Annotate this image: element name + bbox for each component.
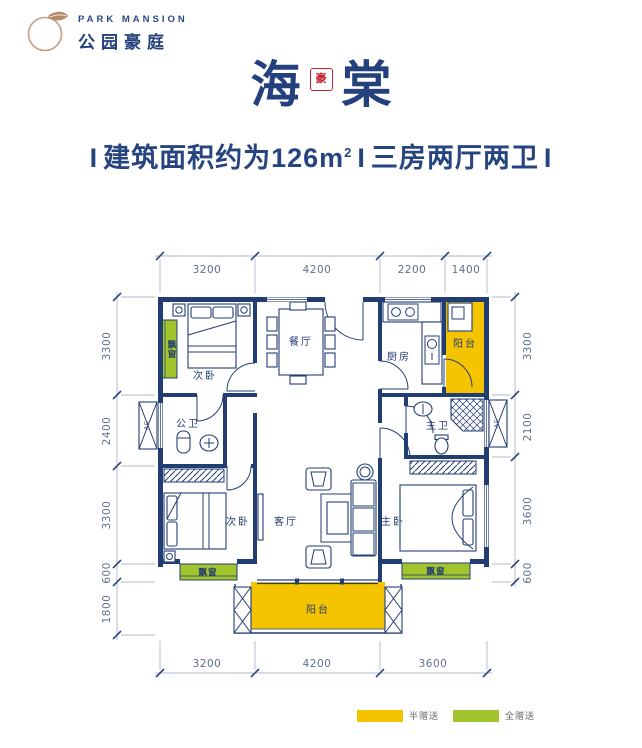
room-label-bedroom-top: 次卧 (193, 369, 217, 382)
ac-label: AC (494, 418, 500, 428)
plan-title: 海 豪 棠 (0, 56, 642, 114)
room-label-bay-br: 飘窗 (426, 566, 445, 576)
bed-icon (400, 485, 476, 551)
dimension-label: 600 (522, 562, 534, 584)
bed-icon (188, 304, 236, 368)
dimension-label: 3200 (193, 264, 222, 276)
title-char-left: 海 (251, 56, 301, 114)
brand-name-en: PARK MANSION (78, 14, 188, 25)
sink-icon (200, 435, 218, 451)
kitchen-counter-icon (383, 302, 442, 384)
dimension-label: 4200 (303, 658, 332, 670)
room-label-bay-bl: 飘窗 (198, 567, 217, 577)
room-label-kitchen: 厨房 (387, 350, 411, 363)
room-label-bath-public: 公卫 (176, 419, 200, 430)
room-label-bay-tl: 飘窗 (167, 340, 177, 359)
water-heater-icon (177, 431, 190, 453)
subtitle-separator: I (544, 143, 553, 173)
ac-unit-icon: AC (489, 400, 507, 447)
legend-swatch-green (453, 710, 499, 722)
dimension-label: 2200 (398, 264, 427, 276)
dimension-label: 3600 (419, 658, 448, 670)
sliding-door (257, 579, 378, 585)
dimension-label: 2100 (522, 413, 534, 442)
toilet-icon (435, 435, 448, 454)
dimension-label: 1400 (452, 264, 481, 276)
subtitle-separator: I (90, 143, 99, 173)
floor-plan-drawing: AC AC 次卧 餐厅 厨房 阳台 公卫 主卫 次卧 客厅 主卧 阳台 飘窗 飘… (85, 243, 565, 693)
dimension-label: 3300 (522, 332, 534, 361)
tv-cabinet-icon (258, 494, 263, 540)
subtitle-layout: 三房两厅两卫 (371, 143, 539, 173)
legend-label: 半赠送 (409, 709, 439, 722)
room-label-bath-master: 主卫 (426, 420, 450, 432)
subtitle-separator: I (357, 143, 366, 173)
sofa-icon (306, 464, 376, 568)
dimension-label: 3300 (101, 501, 113, 530)
plan-subtitle: I建筑面积约为126m2I三房两厅两卫I (0, 136, 642, 175)
wardrobe-icon (410, 461, 476, 474)
brand-name-cn: 公园豪庭 (78, 28, 188, 53)
dimension-label: 2400 (101, 417, 113, 446)
subtitle-area-sup: 2 (344, 145, 352, 160)
wardrobe-icon (164, 469, 224, 482)
room-label-bedroom-master: 主卧 (381, 515, 405, 528)
bed-icon (164, 493, 226, 549)
dimension-label: 3600 (522, 497, 534, 526)
dimension-label: 4200 (303, 264, 332, 276)
shower-icon (451, 399, 483, 431)
ac-unit-icon: AC (139, 402, 157, 449)
brand-header: PARK MANSION 公园豪庭 (22, 6, 188, 56)
legend: 半赠送 全赠送 (357, 709, 535, 722)
legend-label: 全赠送 (505, 709, 535, 722)
legend-item-full-gift: 全赠送 (453, 709, 535, 722)
dimension-label: 1800 (101, 595, 113, 624)
dimension-label: 600 (101, 562, 113, 584)
dimension-label: 3300 (101, 332, 113, 361)
room-label-dining: 餐厅 (289, 335, 313, 348)
room-label-bedroom-bottom: 次卧 (226, 515, 250, 528)
room-label-balcony-top: 阳台 (453, 337, 477, 350)
brand-logo-icon (22, 6, 70, 56)
seal-stamp-icon: 豪 (310, 68, 333, 91)
ac-label: AC (144, 420, 150, 430)
legend-item-half-gift: 半赠送 (357, 709, 439, 722)
floor-plan: AC AC 次卧 餐厅 厨房 阳台 公卫 主卫 次卧 客厅 主卧 阳台 飘窗 飘… (85, 243, 565, 693)
washer-icon (448, 303, 472, 331)
title-char-right: 棠 (342, 56, 392, 114)
room-label-balcony-bottom: 阳台 (306, 603, 330, 616)
nightstand-icon (164, 551, 175, 562)
dimension-label: 3200 (193, 658, 222, 670)
legend-swatch-yellow (357, 710, 403, 722)
subtitle-area: 建筑面积约为126m (103, 143, 344, 173)
room-label-living: 客厅 (274, 515, 298, 528)
sink-icon (414, 402, 432, 416)
